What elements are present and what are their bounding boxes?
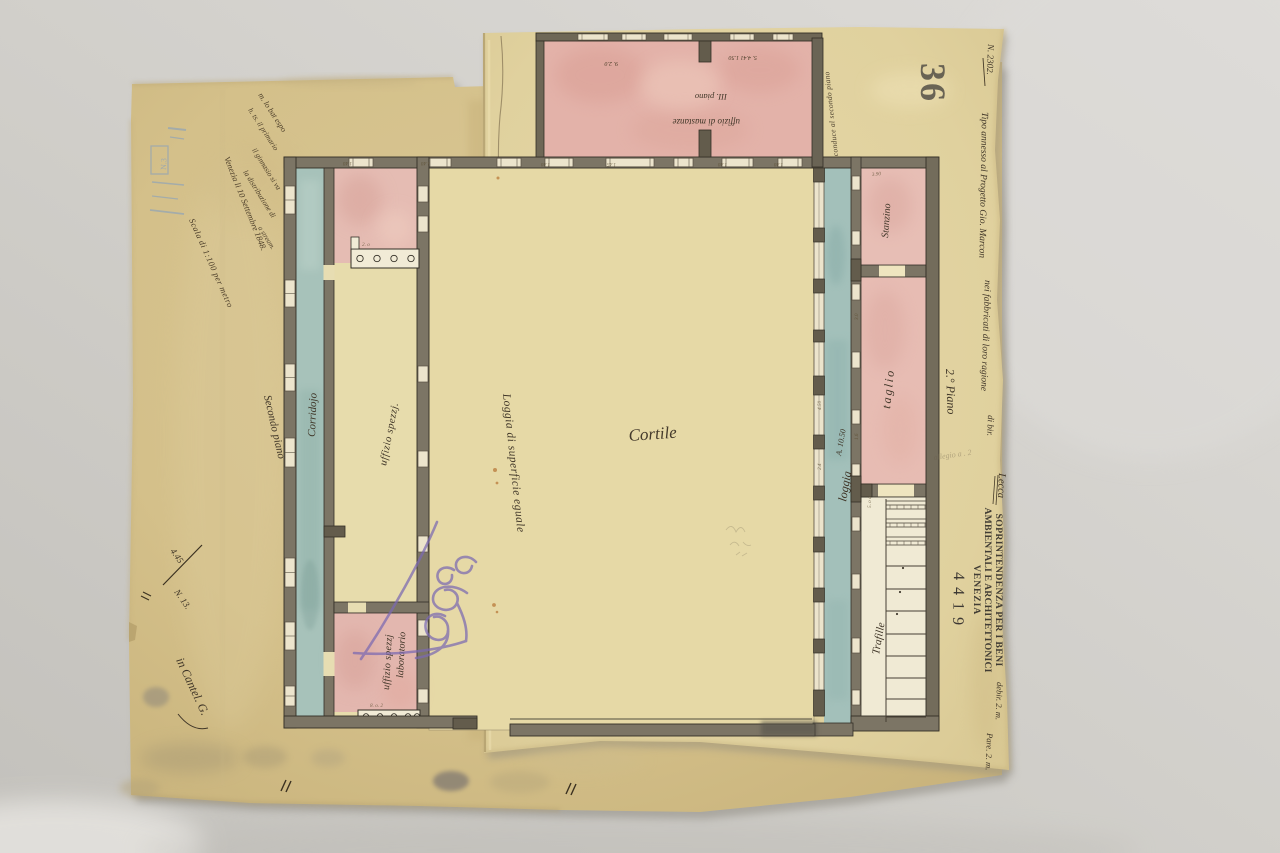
svg-text:N. 2302.: N. 2302. <box>985 43 996 75</box>
svg-text:9. 2.0: 9. 2.0 <box>605 60 619 66</box>
svg-text:uffizio di mastanze: uffizio di mastanze <box>672 117 740 127</box>
svg-text:III. piano: III. piano <box>695 92 728 102</box>
svg-text:1.40: 1.40 <box>718 161 727 168</box>
svg-text:3.90: 3.90 <box>872 171 882 178</box>
svg-text:8. o. 2: 8. o. 2 <box>370 703 383 709</box>
svg-text:SOPRINTENDENZA PER I BENI: SOPRINTENDENZA PER I BENI <box>993 513 1004 666</box>
svg-text:36: 36 <box>913 63 953 103</box>
svg-text:2. o: 2. o <box>362 242 370 248</box>
svg-text:5. 4.41 1.50: 5. 4.41 1.50 <box>729 54 758 61</box>
svg-text:3.0: 3.0 <box>854 313 860 320</box>
svg-text:1.40: 1.40 <box>541 161 550 168</box>
svg-text:Pare. 2. m.: Pare. 2. m. <box>984 732 995 771</box>
svg-text:1.40: 1.40 <box>774 161 783 168</box>
svg-text:2.4: 2.4 <box>816 463 823 470</box>
svg-text:1.6: 1.6 <box>854 433 860 440</box>
svg-text:1.40: 1.40 <box>343 160 352 167</box>
svg-text:4.50: 4.50 <box>816 401 823 410</box>
svg-text:N.3: N.3 <box>159 158 168 170</box>
svg-text:4419: 4419 <box>949 572 967 632</box>
svg-text:5. o a: 5. o a <box>867 496 873 508</box>
svg-text:1.45: 1.45 <box>607 161 616 168</box>
svg-text:1.40: 1.40 <box>421 160 430 167</box>
svg-text:Corridojo: Corridojo <box>306 392 320 437</box>
svg-text:Cortile: Cortile <box>628 423 678 445</box>
svg-text:VENEZIA: VENEZIA <box>971 565 982 615</box>
svg-text:2.° Piano: 2.° Piano <box>943 369 959 415</box>
svg-text:AMBIENTALI E ARCHITETTONICI: AMBIENTALI E ARCHITETTONICI <box>982 507 993 672</box>
svg-text:di bir.: di bir. <box>985 415 996 436</box>
svg-text:debir. 2. m.: debir. 2. m. <box>994 682 1005 720</box>
